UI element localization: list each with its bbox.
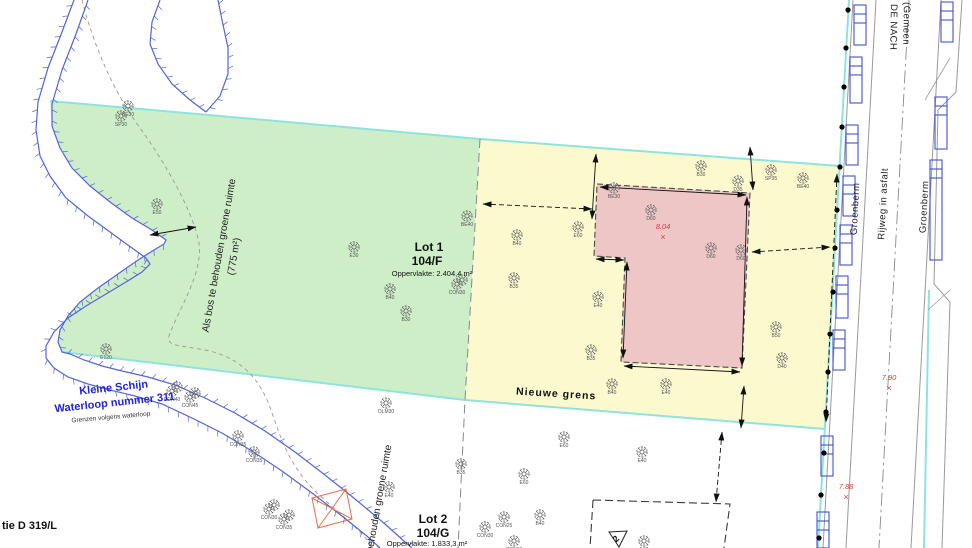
tree-label: CON30 xyxy=(449,290,466,296)
tree-label: E60 xyxy=(520,480,529,486)
boundary-stone-dot xyxy=(837,164,842,169)
tree-label: CON35 xyxy=(230,442,247,448)
spot-height-value: 7.88 xyxy=(839,482,854,491)
tree-label: BE40 xyxy=(797,184,809,190)
tree-label: CON35 xyxy=(276,525,293,531)
section-ref: tie D 319/L xyxy=(2,520,57,532)
tree-label: B35 xyxy=(457,470,466,476)
site-plan-page: 2 BE30 SP30 E50 E30 B40 xyxy=(0,0,972,548)
lot1-number: 104/F xyxy=(412,254,443,268)
spot-height-value: 7.90 xyxy=(882,373,897,382)
tree-label: B40 xyxy=(536,521,545,527)
tree-label: BE40 xyxy=(461,222,473,228)
tree-label: B40 xyxy=(386,295,395,301)
lot1-area: Oppervlakte: 2.404,4 m² xyxy=(392,269,473,278)
tree-label: E40 xyxy=(662,390,671,396)
tree-label: CON35 xyxy=(246,458,263,464)
tree-label: D35 xyxy=(733,187,742,193)
boundary-stone-dot xyxy=(818,492,823,497)
lot2-name: Lot 2 xyxy=(419,512,448,526)
boundary-stone-dot xyxy=(816,535,821,540)
tree-label: CON30 xyxy=(477,533,494,539)
lot1-name: Lot 1 xyxy=(415,240,444,254)
tree-label: B35 xyxy=(587,356,596,362)
tree-label: CON25 xyxy=(496,523,513,529)
tree-label: D40 xyxy=(777,364,786,370)
tree-label: E40 xyxy=(638,458,647,464)
boundary-stone-dot xyxy=(830,289,835,294)
tree-label: CON30 xyxy=(261,515,278,521)
tree-label: D60 xyxy=(736,256,745,262)
tree-label: E30 xyxy=(350,253,359,259)
tree-label: E60 xyxy=(560,443,569,449)
tree-label: B30 xyxy=(697,172,706,178)
tree-label: D60 xyxy=(646,216,655,222)
tree-label: E50 xyxy=(153,210,162,216)
tree-label: BE30 xyxy=(608,194,620,200)
boundary-stone-dot xyxy=(841,84,846,89)
spot-height-value: 8.04 xyxy=(656,222,671,231)
tree-label: SP35 xyxy=(765,176,777,182)
spot-height-cross: × xyxy=(843,492,848,502)
boundary-stone-dot xyxy=(821,450,826,455)
tree-label: E40 xyxy=(594,303,603,309)
cadastral-plan-svg: 2 BE30 SP30 E50 E30 B40 xyxy=(0,0,972,548)
tree-label: SP30 xyxy=(115,122,127,128)
boundary-stone-dot xyxy=(839,124,844,129)
tree-label: B30 xyxy=(402,317,411,323)
spot-height-cross: × xyxy=(660,232,665,242)
boundary-stone-dot xyxy=(832,245,837,250)
street-name: DE NACH xyxy=(887,4,899,50)
tree-label: D60 xyxy=(706,254,715,260)
tree-label: B35 xyxy=(510,284,519,290)
lot2-area: Oppervlakte: 1.833,3 m² xyxy=(387,539,468,548)
tree-label: E60 xyxy=(574,233,583,239)
boundary-stone-dot xyxy=(845,7,850,12)
spot-height-cross: × xyxy=(886,383,891,393)
tree-label: B50 xyxy=(772,333,781,339)
tree-label: E120 xyxy=(100,355,112,361)
boundary-stone-dot xyxy=(843,45,848,50)
tree-label: CON45 xyxy=(182,403,199,409)
tree-label: OLM30 xyxy=(378,409,395,415)
tree-label: B40 xyxy=(608,390,617,396)
street-admin: (Gemeen xyxy=(900,2,912,45)
tree-label: B40 xyxy=(513,241,522,247)
lot2-number: 104/G xyxy=(417,526,450,540)
